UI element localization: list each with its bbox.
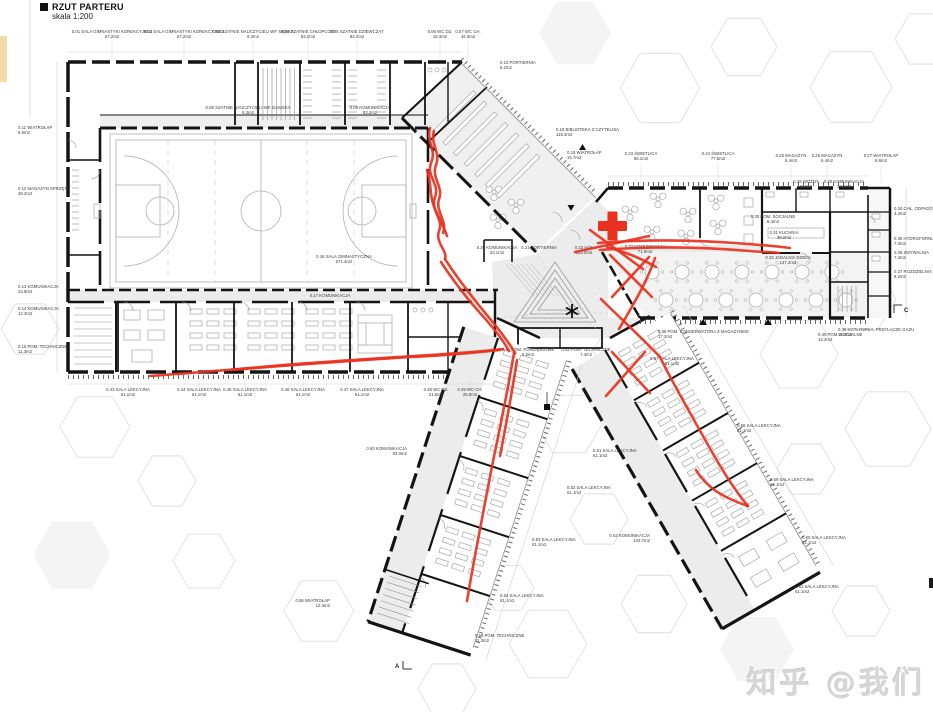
table bbox=[132, 350, 152, 362]
hexagon-pattern-cell bbox=[777, 444, 835, 494]
entrance-marker bbox=[579, 144, 586, 150]
table-lobe bbox=[654, 226, 660, 232]
dining-table bbox=[779, 293, 793, 307]
room-label: 0.44 SALA LEKCYJNA61.1m2 bbox=[177, 387, 221, 397]
room-label: 0.01 SALA GIMNASTYKI KOREKCYJNEJ67.2m2 bbox=[72, 29, 152, 39]
hexagon-pattern-cell bbox=[895, 14, 933, 64]
title-block: RZUT PARTERU skala 1:200 bbox=[40, 2, 124, 21]
hexagon-pattern-cell bbox=[60, 397, 130, 458]
hexagon-pattern-cell bbox=[33, 521, 111, 589]
room-label: 0.53 SALA LEKCYJNA61.1m2 bbox=[532, 537, 576, 547]
desk bbox=[265, 321, 277, 326]
wc-fixture bbox=[442, 68, 446, 72]
desk bbox=[306, 309, 318, 314]
table-lobe bbox=[708, 195, 714, 201]
room-label: 0.35 HYDROFORNIA7.3m2 bbox=[894, 236, 933, 246]
room-label: 0.27 WIATROŁAP8.8m2 bbox=[864, 153, 899, 163]
room-label: 0.47 SALA LEKCYJNA61.1m2 bbox=[340, 387, 384, 397]
table bbox=[124, 330, 140, 340]
square-table bbox=[744, 198, 753, 207]
table-lobe bbox=[513, 207, 519, 213]
hexagon-pattern-cell bbox=[620, 53, 700, 122]
room-label: 0.59 SALA LEKCYJNA61.1m2 bbox=[770, 477, 814, 487]
hexagon-pattern-cell bbox=[832, 586, 890, 636]
room-label: 0.60 SALA LEKCYJNA61.1m2 bbox=[802, 535, 846, 545]
table-center bbox=[686, 212, 690, 216]
watermark: 知乎 @我们 bbox=[747, 658, 925, 702]
desk bbox=[207, 345, 219, 350]
door-arc bbox=[91, 170, 100, 179]
room-label: 0.12 MAGAZYN SPRZĘTU48.2m2 bbox=[18, 186, 70, 196]
table-center bbox=[650, 230, 654, 234]
square-table bbox=[744, 234, 753, 243]
table-lobe bbox=[713, 203, 719, 209]
table-lobe bbox=[495, 222, 501, 228]
desk bbox=[323, 345, 335, 350]
wc-fixture bbox=[429, 308, 433, 312]
desk bbox=[248, 333, 260, 338]
page-title: RZUT PARTERU bbox=[52, 2, 124, 12]
floor-plan-canvas: 0.01 SALA GIMNASTYKI KOREKCYJNEJ67.2m20.… bbox=[0, 0, 933, 712]
table-center bbox=[684, 234, 688, 238]
room-label: 0.45 SALA LEKCYJNA61.1m2 bbox=[223, 387, 267, 397]
desk bbox=[190, 345, 202, 350]
wall bbox=[596, 188, 608, 202]
table-center bbox=[628, 210, 632, 214]
room-label: 0.13 KOMUNIKACJA23.8m2 bbox=[18, 284, 59, 294]
table-lobe bbox=[720, 220, 726, 226]
wc-fixture bbox=[428, 68, 432, 72]
wc-fixture bbox=[413, 308, 417, 312]
table-lobe bbox=[486, 186, 492, 192]
desk bbox=[248, 321, 260, 326]
table-lobe bbox=[655, 201, 661, 207]
table bbox=[384, 323, 392, 345]
room-label: 0.15 POM. TECHNICZNE11.3m2 bbox=[18, 344, 67, 354]
gym-floor bbox=[100, 128, 428, 290]
table bbox=[148, 310, 164, 320]
room-label: 0.23 ŚWIETLICA66.1m2 bbox=[625, 151, 658, 161]
table bbox=[148, 330, 164, 340]
table-lobe bbox=[650, 193, 656, 199]
desk bbox=[265, 309, 277, 314]
desk bbox=[323, 321, 335, 326]
room-label: 0.34 CHŁ. ODPADÓW4.3m2 bbox=[894, 206, 933, 216]
table bbox=[358, 345, 392, 353]
room-label: 0.07 WC CH.16.3m2 bbox=[455, 29, 480, 39]
section-marker bbox=[544, 404, 550, 410]
table-lobe bbox=[644, 226, 650, 232]
desk bbox=[265, 345, 277, 350]
dining-table bbox=[659, 293, 673, 307]
desk bbox=[265, 333, 277, 338]
room-label: 0.58 SALA LEKCYJNA61.1m2 bbox=[737, 423, 781, 433]
hexagon-pattern-cell bbox=[621, 575, 687, 632]
hexagon-pattern-cell bbox=[284, 581, 354, 642]
table bbox=[358, 315, 392, 323]
hexagon-pattern-cell bbox=[509, 610, 587, 678]
table-lobe bbox=[680, 208, 686, 214]
kitchen-fixture bbox=[872, 232, 880, 237]
desk bbox=[323, 309, 335, 314]
scale-note: skala 1:200 bbox=[52, 12, 124, 21]
hexagon-pattern-cell bbox=[418, 664, 476, 712]
table-lobe bbox=[690, 208, 696, 214]
desk bbox=[207, 309, 219, 314]
table-center bbox=[716, 224, 720, 228]
desk bbox=[207, 321, 219, 326]
table-lobe bbox=[715, 228, 721, 234]
room-label: 0.26 MAGAZYN6.4m2 bbox=[812, 153, 843, 163]
room-label: 0.06 WC DZ.16.3m2 bbox=[428, 29, 453, 39]
room-label: 0.17 KOMUNIKACJA bbox=[310, 293, 351, 298]
room-label: 0.37 ROZDZIELNIA POSIŁKÓW8.2m2 bbox=[894, 269, 933, 279]
room-label: 0.55 POM. TECHNICZNE11.3m2 bbox=[475, 633, 524, 643]
section-mark-a bbox=[403, 661, 412, 669]
desk bbox=[306, 333, 318, 338]
table-lobe bbox=[688, 230, 694, 236]
table-center bbox=[514, 203, 518, 207]
desk bbox=[248, 345, 260, 350]
desk bbox=[306, 345, 318, 350]
table-lobe bbox=[490, 214, 496, 220]
dining-table bbox=[705, 265, 719, 279]
desk bbox=[190, 333, 202, 338]
table-lobe bbox=[622, 206, 628, 212]
room-label: 0.24 ŚWIETLICA77.5m2 bbox=[702, 151, 735, 161]
table-lobe bbox=[627, 214, 633, 220]
dining-table bbox=[689, 293, 703, 307]
room-label: 0.46 SALA LEKCYJNA61.1m2 bbox=[281, 387, 325, 397]
locker-corridor-floor bbox=[100, 115, 428, 128]
room-label: 0.50 KOMUNIKACJA93.0m2 bbox=[366, 446, 407, 456]
section-letter-c: C bbox=[904, 308, 909, 314]
wc-fixture bbox=[421, 308, 425, 312]
room-label: 0.39 POM. KONSERWATORA Z MAGAZYNEM17.2m2 bbox=[658, 329, 749, 339]
room-label: 0.40 POM. SOCJALNE12.2m2 bbox=[818, 332, 863, 342]
dining-table bbox=[749, 293, 763, 307]
dining-table bbox=[765, 265, 779, 279]
room-label: 0.14 KOMUNIKACJA12.3m2 bbox=[18, 306, 59, 316]
table bbox=[124, 310, 140, 320]
table bbox=[358, 323, 366, 345]
table-lobe bbox=[710, 220, 716, 226]
hexagon-pattern-cell bbox=[810, 52, 892, 123]
desk bbox=[190, 321, 202, 326]
room-label: 0.56 WIATROŁAP12.3m2 bbox=[295, 598, 330, 608]
room-label: 0.21 PORTIERNIA bbox=[521, 245, 557, 250]
room-label: 0.10 PORTIERNIA6.2m2 bbox=[500, 60, 536, 70]
room-label: 0.19 WIATROŁAP15.7m2 bbox=[567, 150, 602, 160]
dining-table bbox=[675, 265, 689, 279]
title-bullet-square bbox=[40, 3, 48, 11]
section-letter-a: A bbox=[395, 664, 400, 670]
dining-floor bbox=[602, 252, 868, 318]
dining-table bbox=[795, 265, 809, 279]
desk bbox=[207, 333, 219, 338]
kitchen-fixture bbox=[800, 192, 808, 197]
dining-table bbox=[735, 265, 749, 279]
table-center bbox=[492, 190, 496, 194]
room-label: 0.61 SALA LEKCYJNA61.1m2 bbox=[795, 584, 839, 594]
table-lobe bbox=[678, 230, 684, 236]
page: 0.01 SALA GIMNASTYKI KOREKCYJNEJ67.2m20.… bbox=[0, 0, 933, 712]
wc-fixture bbox=[435, 68, 439, 72]
main-corridor-floor bbox=[68, 290, 498, 302]
section-mark-c bbox=[894, 305, 902, 313]
red-cross-marker bbox=[608, 212, 618, 241]
left-edge-accent-bar bbox=[0, 36, 7, 82]
room-label: 0.05 SZATNIE DZIEWCZĄT83.2m2 bbox=[330, 29, 384, 39]
table-lobe bbox=[632, 206, 638, 212]
room-label: 0.54 SALA LEKCYJNA61.1m2 bbox=[500, 593, 544, 603]
hexagon-pattern-cell bbox=[138, 456, 196, 506]
dining-table bbox=[825, 265, 839, 279]
hexagon-pattern-cell bbox=[711, 18, 777, 75]
hexagon-pattern-cell bbox=[760, 320, 838, 388]
room-label: 0.04 SZATNIE CHŁOPCÓW83.2m2 bbox=[281, 29, 336, 39]
dining-table bbox=[719, 293, 733, 307]
table-lobe bbox=[685, 216, 691, 222]
room-label: 0.36 ZMYWALNIA7.3m2 bbox=[894, 250, 929, 260]
table-lobe bbox=[518, 199, 524, 205]
kitchen-fixture bbox=[766, 192, 774, 197]
desk bbox=[323, 333, 335, 338]
room-label: 0.43 SALA LEKCYJNA61.1m2 bbox=[106, 387, 150, 397]
dining-table bbox=[839, 293, 853, 307]
table-center bbox=[714, 199, 718, 203]
hexagon-pattern-cell bbox=[173, 534, 235, 588]
kitchen-fixture bbox=[836, 192, 844, 197]
table-lobe bbox=[718, 195, 724, 201]
table-lobe bbox=[660, 193, 666, 199]
table-center bbox=[496, 218, 500, 222]
hexagon-pattern-cell bbox=[539, 2, 611, 64]
dining-table bbox=[809, 293, 823, 307]
room-label: 0.25 MAGAZYN6.4m2 bbox=[776, 153, 807, 163]
table-lobe bbox=[508, 199, 514, 205]
room-label: 0.11 WIATROŁAP9.5m2 bbox=[18, 125, 52, 135]
utility-column-floor bbox=[868, 188, 890, 318]
desk bbox=[306, 321, 318, 326]
desk bbox=[248, 309, 260, 314]
room-label: 0.18 BIBLIOTEKA Z CZYTELNIĄ118.4m2 bbox=[556, 127, 619, 137]
right-edge-mark bbox=[929, 578, 933, 588]
desk bbox=[190, 309, 202, 314]
table-center bbox=[656, 197, 660, 201]
hexagon-pattern-cell bbox=[845, 392, 931, 466]
kitchen-fixture bbox=[872, 256, 880, 261]
